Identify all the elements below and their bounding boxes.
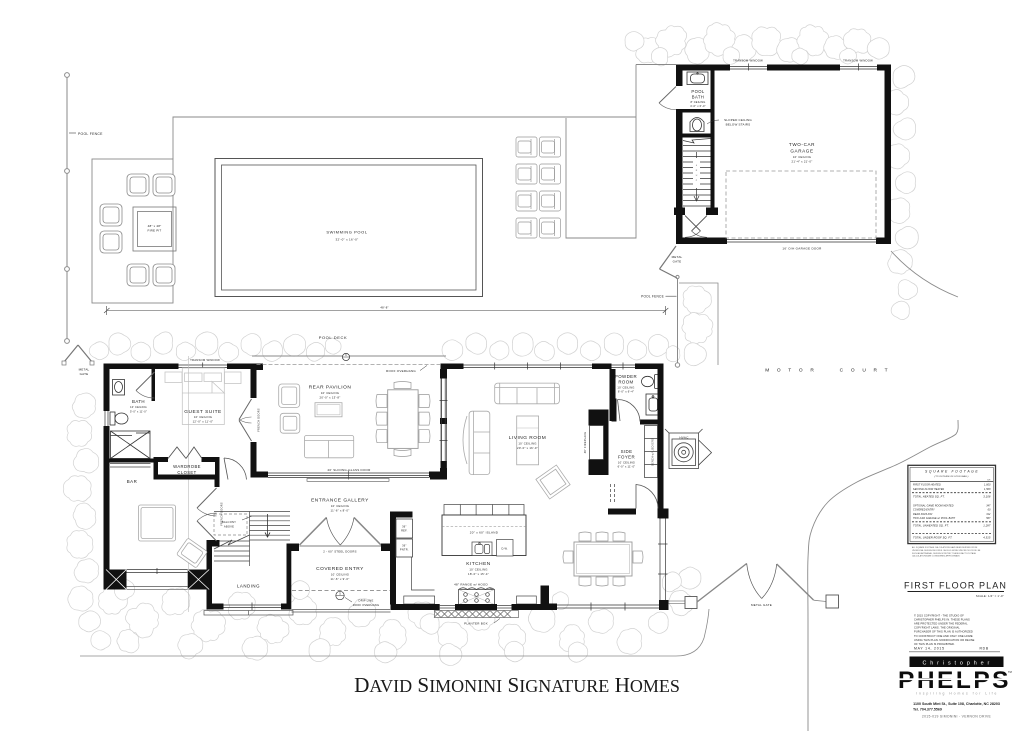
svg-text:5'-0" x 11'-0": 5'-0" x 11'-0"	[130, 410, 147, 414]
svg-text:PLANTER BOX: PLANTER BOX	[464, 622, 488, 626]
svg-text:C h r i s t o p h e r: C h r i s t o p h e r	[922, 661, 990, 667]
svg-text:LANDING: LANDING	[237, 584, 260, 589]
svg-text:ROOM: ROOM	[618, 380, 633, 385]
svg-text:GATE: GATE	[673, 260, 682, 264]
svg-text:20'-0" x 13'-8": 20'-0" x 13'-8"	[320, 396, 341, 400]
svg-text:10' CEILING: 10' CEILING	[321, 391, 339, 395]
svg-text:6'-0" x 11'-0": 6'-0" x 11'-0"	[618, 465, 636, 469]
svg-text:TOTAL HEATED SQ. FT.: TOTAL HEATED SQ. FT.	[913, 494, 945, 498]
svg-text:OF THIS PLAN IS PROHIBITED.: OF THIS PLAN IS PROHIBITED.	[914, 642, 955, 646]
svg-text:SIDE: SIDE	[621, 449, 633, 454]
svg-text:ALL SQUARE FOOTAGE CALCULATION: ALL SQUARE FOOTAGE CALCULATIONS HAVE BEE…	[912, 546, 978, 549]
svg-text:10' CEILING: 10' CEILING	[469, 568, 487, 572]
svg-text:TM: TM	[1008, 670, 1012, 674]
svg-text:TOTAL UNHEATED SQ. FT.: TOTAL UNHEATED SQ. FT.	[913, 523, 949, 527]
svg-text:46" FIREPLACE: 46" FIREPLACE	[583, 432, 587, 454]
svg-text:POWDER: POWDER	[615, 374, 637, 379]
svg-text:32'-0" x 16'-0": 32'-0" x 16'-0"	[336, 238, 359, 242]
svg-text:METAL: METAL	[672, 255, 683, 259]
svg-text:2 - 60" STEEL DOORS: 2 - 60" STEEL DOORS	[323, 550, 356, 554]
svg-text:21'-4" x 21'-0": 21'-4" x 21'-0"	[792, 160, 813, 164]
svg-text:REAR PAVILION: REAR PAVILION	[309, 385, 352, 391]
svg-text:METAL GATE: METAL GATE	[751, 603, 772, 607]
svg-text:TOTAL UNDER ROOF SQ. FT.: TOTAL UNDER ROOF SQ. FT.	[913, 536, 953, 540]
svg-text:10' CEILING: 10' CEILING	[331, 504, 349, 508]
svg-text:TO CONSTRUCT ONE AND ONLY ONE: TO CONSTRUCT ONE AND ONLY ONE HOME	[914, 634, 973, 638]
svg-text:POOL FENCE: POOL FENCE	[78, 132, 103, 136]
svg-text:SLOPED CEILING: SLOPED CEILING	[724, 118, 752, 122]
svg-text:SECOND FLOOR HEATED: SECOND FLOOR HEATED	[913, 488, 944, 491]
svg-text:10' CEILING: 10' CEILING	[194, 415, 212, 419]
svg-text:12'-0" x 11'-0": 12'-0" x 11'-0"	[193, 420, 214, 424]
svg-text:POOL DECK: POOL DECK	[319, 335, 348, 340]
svg-text:RDB: RDB	[979, 647, 989, 651]
svg-text:11'-6" x 9'-0": 11'-6" x 9'-0"	[331, 577, 350, 581]
svg-text:48" x 48": 48" x 48"	[148, 224, 162, 228]
svg-text:FIRE PIT: FIRE PIT	[148, 229, 162, 233]
svg-text:2015-019 SIMONINI - VERNON: 2015-019 SIMONINI - VERNON DRIVE	[922, 715, 992, 719]
svg-text:4,515: 4,515	[983, 536, 991, 540]
svg-text:SWIMMING POOL: SWIMMING POOL	[326, 230, 368, 235]
svg-text:48'-8": 48'-8"	[380, 305, 388, 309]
svg-text:ROOF OVERHANG: ROOF OVERHANG	[353, 603, 380, 607]
svg-text:8' CEILING: 8' CEILING	[690, 100, 705, 104]
svg-text:Tel. 704.377.5569: Tel. 704.377.5569	[913, 708, 942, 712]
svg-text:© 2015 COPYRIGHT - THE STUDIO: © 2015 COPYRIGHT - THE STUDIO OF	[914, 614, 964, 618]
svg-text:REF.: REF.	[401, 529, 407, 533]
svg-text:PHELPS: PHELPS	[898, 667, 1011, 694]
svg-text:MAY 14, 2015: MAY 14, 2015	[914, 647, 945, 651]
svg-text:USING THIS PLAN. MODIFICATION: USING THIS PLAN. MODIFICATION OR REUSE	[914, 638, 975, 642]
svg-text:TRANSOM WINDOW: TRANSOM WINDOW	[733, 59, 763, 63]
svg-text:FRENCH DOORS: FRENCH DOORS	[220, 502, 224, 526]
svg-text:10' CEILING: 10' CEILING	[793, 155, 811, 159]
svg-text:CALCULATIONS ARE CONSIDERED AP: CALCULATIONS ARE CONSIDERED APPROXIMATE.	[912, 555, 961, 558]
svg-text:20' SLIDING-GLASS DOOR: 20' SLIDING-GLASS DOOR	[327, 468, 371, 472]
svg-text:BATH: BATH	[132, 399, 145, 404]
svg-text:COVERED ENTRY: COVERED ENTRY	[316, 566, 364, 572]
svg-text:6'-0" x 6'-4": 6'-0" x 6'-4"	[618, 390, 634, 394]
svg-text:(TO OUTSIDE OF STUD WALL): (TO OUTSIDE OF STUD WALL)	[935, 475, 969, 478]
svg-text:FIRST FLOOR PLAN: FIRST FLOOR PLAN	[904, 581, 1007, 591]
svg-text:COVERED ENTRY: COVERED ENTRY	[913, 509, 935, 512]
svg-text:DAVID SIMONINI SIGNATURE HOMES: DAVID SIMONINI SIGNATURE HOMES	[354, 673, 680, 697]
svg-text:10' CEILING: 10' CEILING	[331, 573, 349, 577]
svg-text:PNTR.: PNTR.	[400, 548, 409, 552]
svg-text:TRANSOM WINDOW: TRANSOM WINDOW	[843, 59, 873, 63]
svg-text:D.W.: D.W.	[501, 547, 507, 551]
svg-text:18'-0" x 15'-4": 18'-0" x 15'-4"	[468, 572, 489, 576]
svg-text:312: 312	[986, 513, 991, 516]
svg-text:TRANSOM WINDOW: TRANSOM WINDOW	[190, 358, 220, 362]
svg-text:FOYER: FOYER	[618, 455, 635, 460]
svg-text:BELOW STAIRS: BELOW STAIRS	[726, 123, 751, 127]
svg-text:1,600: 1,600	[984, 484, 991, 487]
svg-text:SCALE: 1/4" = 1'-0": SCALE: 1/4" = 1'-0"	[976, 594, 1004, 598]
svg-text:CLOSET: CLOSET	[177, 470, 196, 475]
svg-text:FRENCH DOORS: FRENCH DOORS	[257, 408, 261, 432]
svg-text:METAL: METAL	[79, 368, 90, 372]
svg-text:WARDROBE: WARDROBE	[173, 464, 201, 469]
svg-text:10' CEILING: 10' CEILING	[618, 461, 635, 465]
svg-text:M O T O R C O U R T: M O T O R C O U R T	[765, 368, 891, 374]
svg-text:10' CEILING: 10' CEILING	[130, 405, 147, 409]
svg-text:20" x 60" ISLAND: 20" x 60" ISLAND	[470, 531, 499, 535]
svg-text:REAR PAVILION: REAR PAVILION	[913, 513, 932, 516]
svg-text:16' O/H GARAGE DOOR: 16' O/H GARAGE DOOR	[782, 247, 822, 251]
svg-text:BENCH w/ LOCKERS: BENCH w/ LOCKERS	[652, 438, 655, 466]
svg-text:HVAC: HVAC	[679, 436, 689, 440]
svg-text:POOL: POOL	[691, 89, 705, 94]
svg-text:TWO-CAR: TWO-CAR	[789, 142, 815, 147]
svg-text:567: 567	[986, 517, 991, 520]
svg-text:SUCH AS APPRAISAL, DESIGN SCRU: SUCH AS APPRAISAL, DESIGN SCRUTINY, THES…	[912, 552, 977, 555]
svg-text:4'-6" x 6'-0": 4'-6" x 6'-0"	[690, 104, 706, 108]
svg-text:TWO-CAR GARAGE w/ POOL BATH: TWO-CAR GARAGE w/ POOL BATH	[913, 517, 955, 520]
svg-text:ENTRANCE GALLERY: ENTRANCE GALLERY	[311, 498, 369, 504]
svg-text:1100 South Mint St., Suite 108: 1100 South Mint St., Suite 108, Charlott…	[913, 702, 1000, 706]
svg-text:ARE PROTECTED UNDER THE FEDERA: ARE PROTECTED UNDER THE FEDERAL	[914, 622, 968, 626]
svg-text:I n s p i r i n g H o m e s: I n s p i r i n g H o m e s f o r L i f …	[916, 692, 997, 696]
svg-text:1,508: 1,508	[984, 488, 991, 491]
svg-text:ROOF OVERHANG: ROOF OVERHANG	[386, 369, 416, 373]
svg-text:10' CEILING: 10' CEILING	[518, 442, 536, 446]
svg-text:BATH: BATH	[692, 95, 704, 100]
svg-text:PURCHASER OF THIS PLAN IS AUTH: PURCHASER OF THIS PLAN IS AUTHORIZED	[914, 630, 973, 634]
svg-text:1,287: 1,287	[983, 523, 991, 527]
svg-text:OPTIONAL GAME ROOM HEATED: OPTIONAL GAME ROOM HEATED	[913, 505, 954, 508]
svg-text:11'-6" x 8'-0": 11'-6" x 8'-0"	[331, 509, 350, 513]
svg-text:S Q U A R E F O O T A G E: S Q U A R E F O O T A G E	[925, 469, 978, 473]
svg-text:10' CEILING: 10' CEILING	[617, 386, 634, 390]
svg-text:BAR: BAR	[127, 479, 138, 484]
svg-text:FIRST FLOOR HEATED: FIRST FLOOR HEATED	[913, 484, 941, 487]
svg-text:COPYRIGHT LAWS. THE ORIGINAL: COPYRIGHT LAWS. THE ORIGINAL	[914, 626, 960, 630]
svg-text:LIVING ROOM: LIVING ROOM	[509, 435, 546, 441]
svg-text:36": 36"	[402, 544, 406, 548]
svg-text:POOL FENCE: POOL FENCE	[641, 295, 664, 299]
svg-text:GATE: GATE	[80, 372, 89, 376]
svg-text:UNOFFICIAL DESIGN RECORDS. SHO: UNOFFICIAL DESIGN RECORDS. SHOULD MORE S…	[912, 549, 981, 552]
svg-text:CHRISTOPHER PHELPS IN. THESE P: CHRISTOPHER PHELPS IN. THESE PLANS	[914, 618, 970, 622]
svg-text:GARAGE: GARAGE	[790, 149, 813, 154]
svg-text:ABOVE: ABOVE	[224, 525, 234, 529]
svg-text:DRIP LINE: DRIP LINE	[359, 599, 374, 603]
svg-text:36": 36"	[402, 525, 406, 529]
svg-text:3,108: 3,108	[983, 494, 991, 498]
svg-text:48" RANGE w/ HOOD: 48" RANGE w/ HOOD	[454, 582, 488, 586]
svg-text:347: 347	[986, 505, 991, 508]
svg-text:BALCONY: BALCONY	[222, 520, 236, 524]
svg-text:20'-0" x 16'-0": 20'-0" x 16'-0"	[517, 446, 538, 450]
svg-text:KITCHEN: KITCHEN	[466, 561, 491, 567]
